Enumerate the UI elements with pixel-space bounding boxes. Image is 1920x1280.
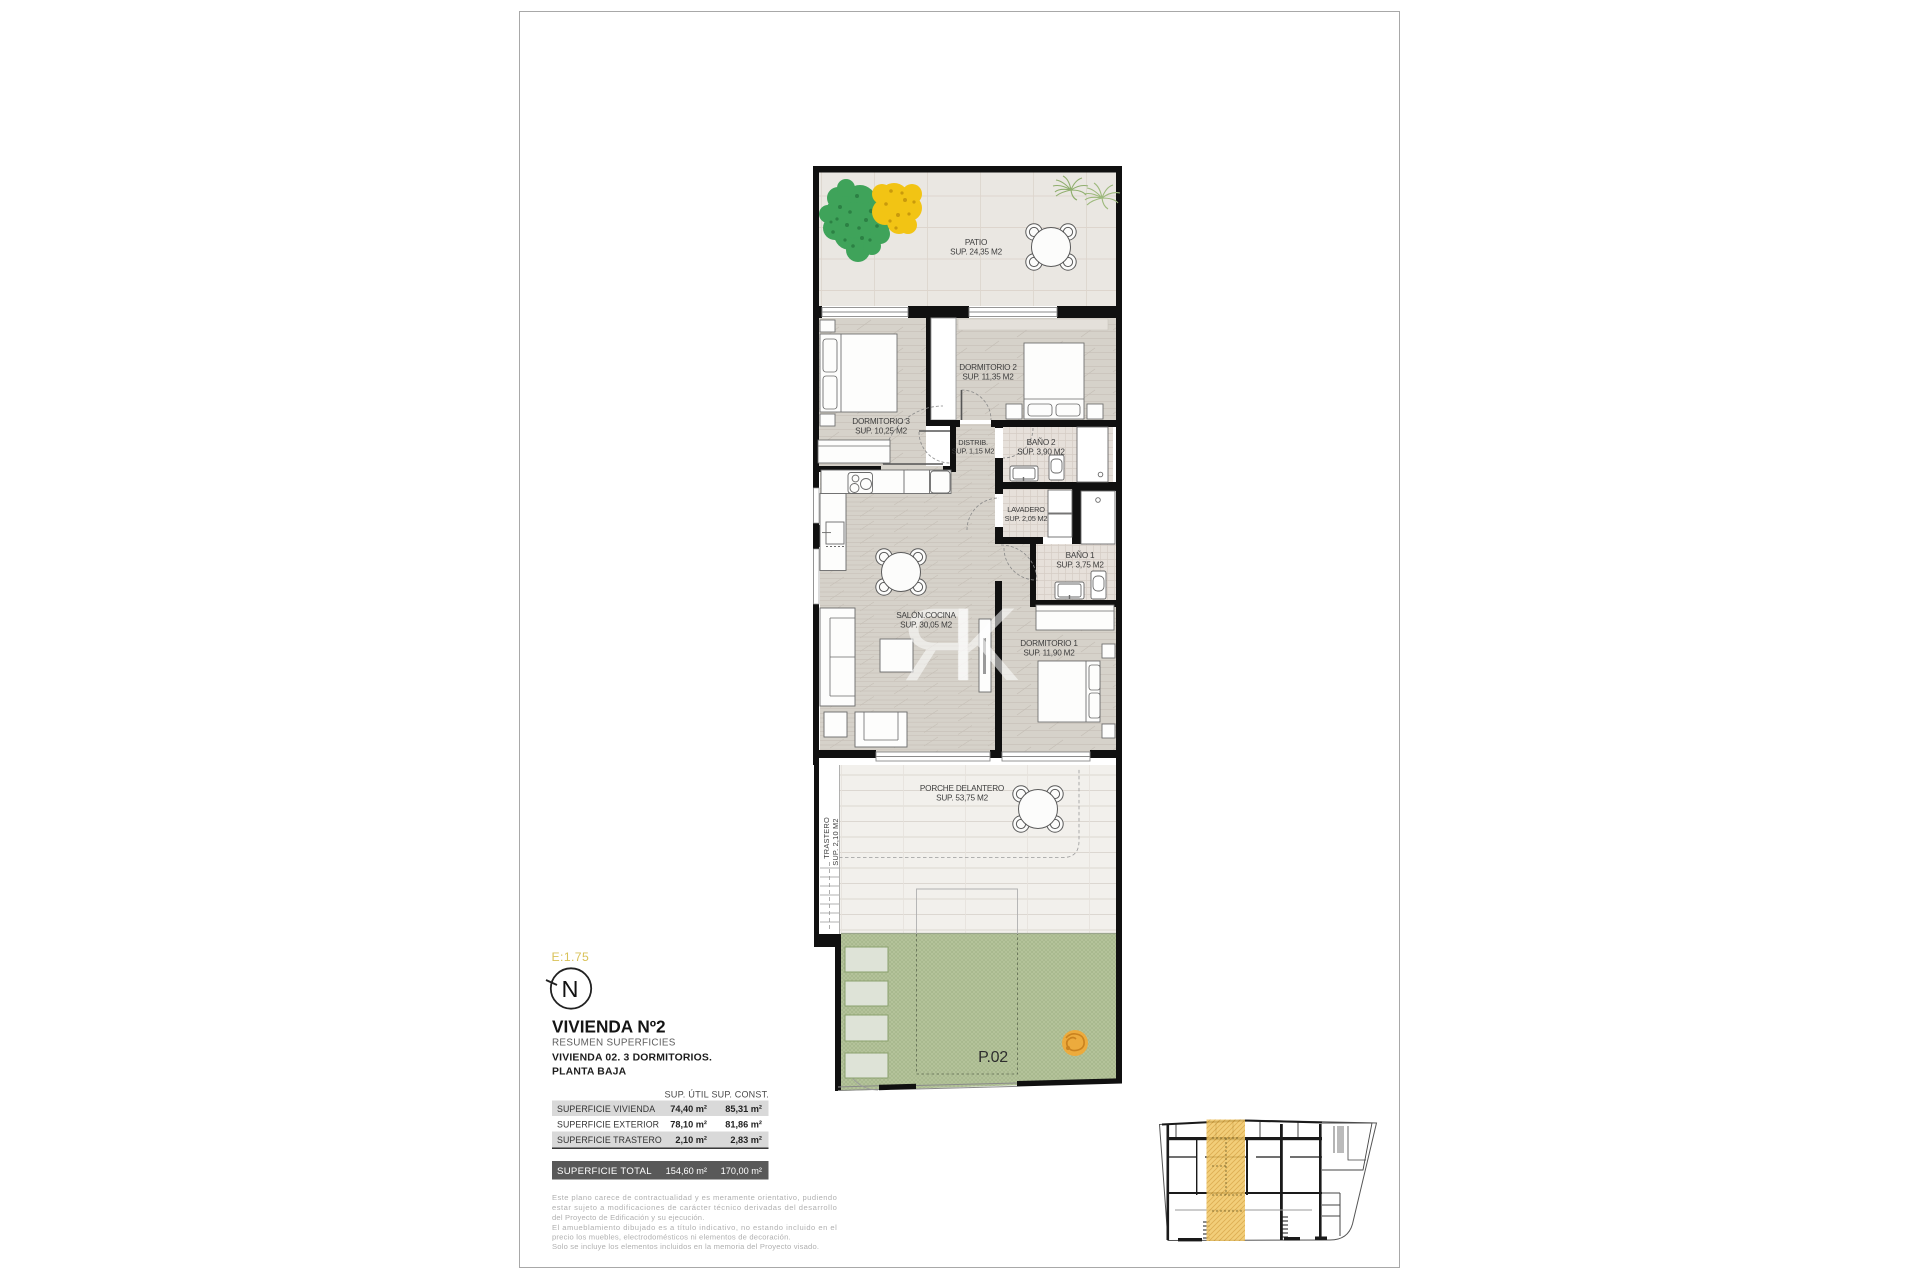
svg-text:Este plano carece de contractu: Este plano carece de contractualidad y e…: [552, 1193, 837, 1202]
svg-text:2,10 m²: 2,10 m²: [675, 1135, 707, 1145]
svg-text:TRASTERO: TRASTERO: [822, 817, 831, 859]
svg-text:P.02: P.02: [978, 1049, 1008, 1066]
svg-text:LAVADERO: LAVADERO: [1007, 505, 1045, 514]
svg-text:SUP. 10,25 M2: SUP. 10,25 M2: [855, 427, 908, 436]
svg-text:VIVIENDA 02. 3 DORMITORIOS.: VIVIENDA 02. 3 DORMITORIOS.: [552, 1052, 712, 1063]
svg-text:SUP. 24,35 M2: SUP. 24,35 M2: [950, 248, 1003, 257]
svg-text:PORCHE DELANTERO: PORCHE DELANTERO: [920, 784, 1004, 793]
svg-text:SUP. 53,75 M2: SUP. 53,75 M2: [936, 794, 989, 803]
svg-text:PLANTA BAJA: PLANTA BAJA: [552, 1067, 627, 1078]
svg-text:SUPERFICIE VIVIENDA: SUPERFICIE VIVIENDA: [557, 1104, 655, 1114]
svg-text:VIVIENDA Nº2: VIVIENDA Nº2: [552, 1017, 666, 1037]
svg-text:ЯK: ЯK: [901, 587, 1019, 703]
svg-text:BAÑO 2: BAÑO 2: [1027, 437, 1056, 447]
svg-text:81,86 m²: 81,86 m²: [725, 1119, 762, 1129]
svg-text:E:1.75: E:1.75: [552, 950, 590, 964]
svg-text:SUP. 3,90 M2: SUP. 3,90 M2: [1017, 448, 1065, 457]
svg-text:SUP. 11,90 M2: SUP. 11,90 M2: [1023, 649, 1075, 658]
svg-text:78,10 m²: 78,10 m²: [670, 1119, 707, 1129]
svg-text:estar sujeto a modificaciones: estar sujeto a modificaciones de carácte…: [552, 1203, 837, 1212]
svg-text:SUP. ÚTIL: SUP. ÚTIL: [664, 1090, 709, 1100]
svg-text:DORMITORIO 2: DORMITORIO 2: [959, 363, 1017, 372]
svg-text:Solo se incluye los elementos: Solo se incluye los elementos incluidos …: [552, 1242, 819, 1251]
svg-text:BAÑO 1: BAÑO 1: [1066, 550, 1095, 560]
svg-text:del Proyecto de Edificación y: del Proyecto de Edificación y su ejecuci…: [552, 1213, 705, 1222]
svg-text:SUP. 2,05 M2: SUP. 2,05 M2: [1005, 514, 1048, 523]
svg-text:170,00 m²: 170,00 m²: [721, 1166, 762, 1176]
svg-text:2,83 m²: 2,83 m²: [730, 1135, 762, 1145]
svg-text:SUP. 2,10 M2: SUP. 2,10 M2: [831, 818, 840, 865]
svg-text:precio los muebles, electrodom: precio los muebles, electrodomésticos ni…: [552, 1233, 791, 1242]
svg-text:PATIO: PATIO: [965, 238, 987, 247]
svg-text:DORMITORIO 1: DORMITORIO 1: [1020, 639, 1078, 648]
svg-text:SUP. 3,75 M2: SUP. 3,75 M2: [1056, 561, 1104, 570]
svg-text:N: N: [562, 976, 579, 1002]
svg-text:154,60 m²: 154,60 m²: [666, 1166, 707, 1176]
svg-text:RESUMEN SUPERFICIES: RESUMEN SUPERFICIES: [552, 1038, 676, 1049]
svg-text:El amueblamiento dibujado es a: El amueblamiento dibujado es a título in…: [552, 1223, 837, 1232]
svg-text:85,31 m²: 85,31 m²: [725, 1104, 762, 1114]
svg-text:SUP. CONST.: SUP. CONST.: [711, 1090, 769, 1100]
svg-text:SALÓN.COCINA: SALÓN.COCINA: [896, 610, 956, 620]
svg-text:SUP. 11,35 M2: SUP. 11,35 M2: [962, 373, 1014, 382]
svg-text:SUPERFICIE TRASTERO: SUPERFICIE TRASTERO: [557, 1135, 662, 1145]
svg-text:SUPERFICIE TOTAL: SUPERFICIE TOTAL: [557, 1166, 652, 1177]
svg-text:SUPERFICIE EXTERIOR: SUPERFICIE EXTERIOR: [557, 1119, 659, 1129]
svg-text:SUP. 30,05 M2: SUP. 30,05 M2: [900, 621, 953, 630]
svg-text:SUP. 1,15 M2: SUP. 1,15 M2: [952, 447, 995, 456]
svg-text:DORMITORIO 3: DORMITORIO 3: [852, 417, 910, 426]
svg-text:74,40 m²: 74,40 m²: [670, 1104, 707, 1114]
